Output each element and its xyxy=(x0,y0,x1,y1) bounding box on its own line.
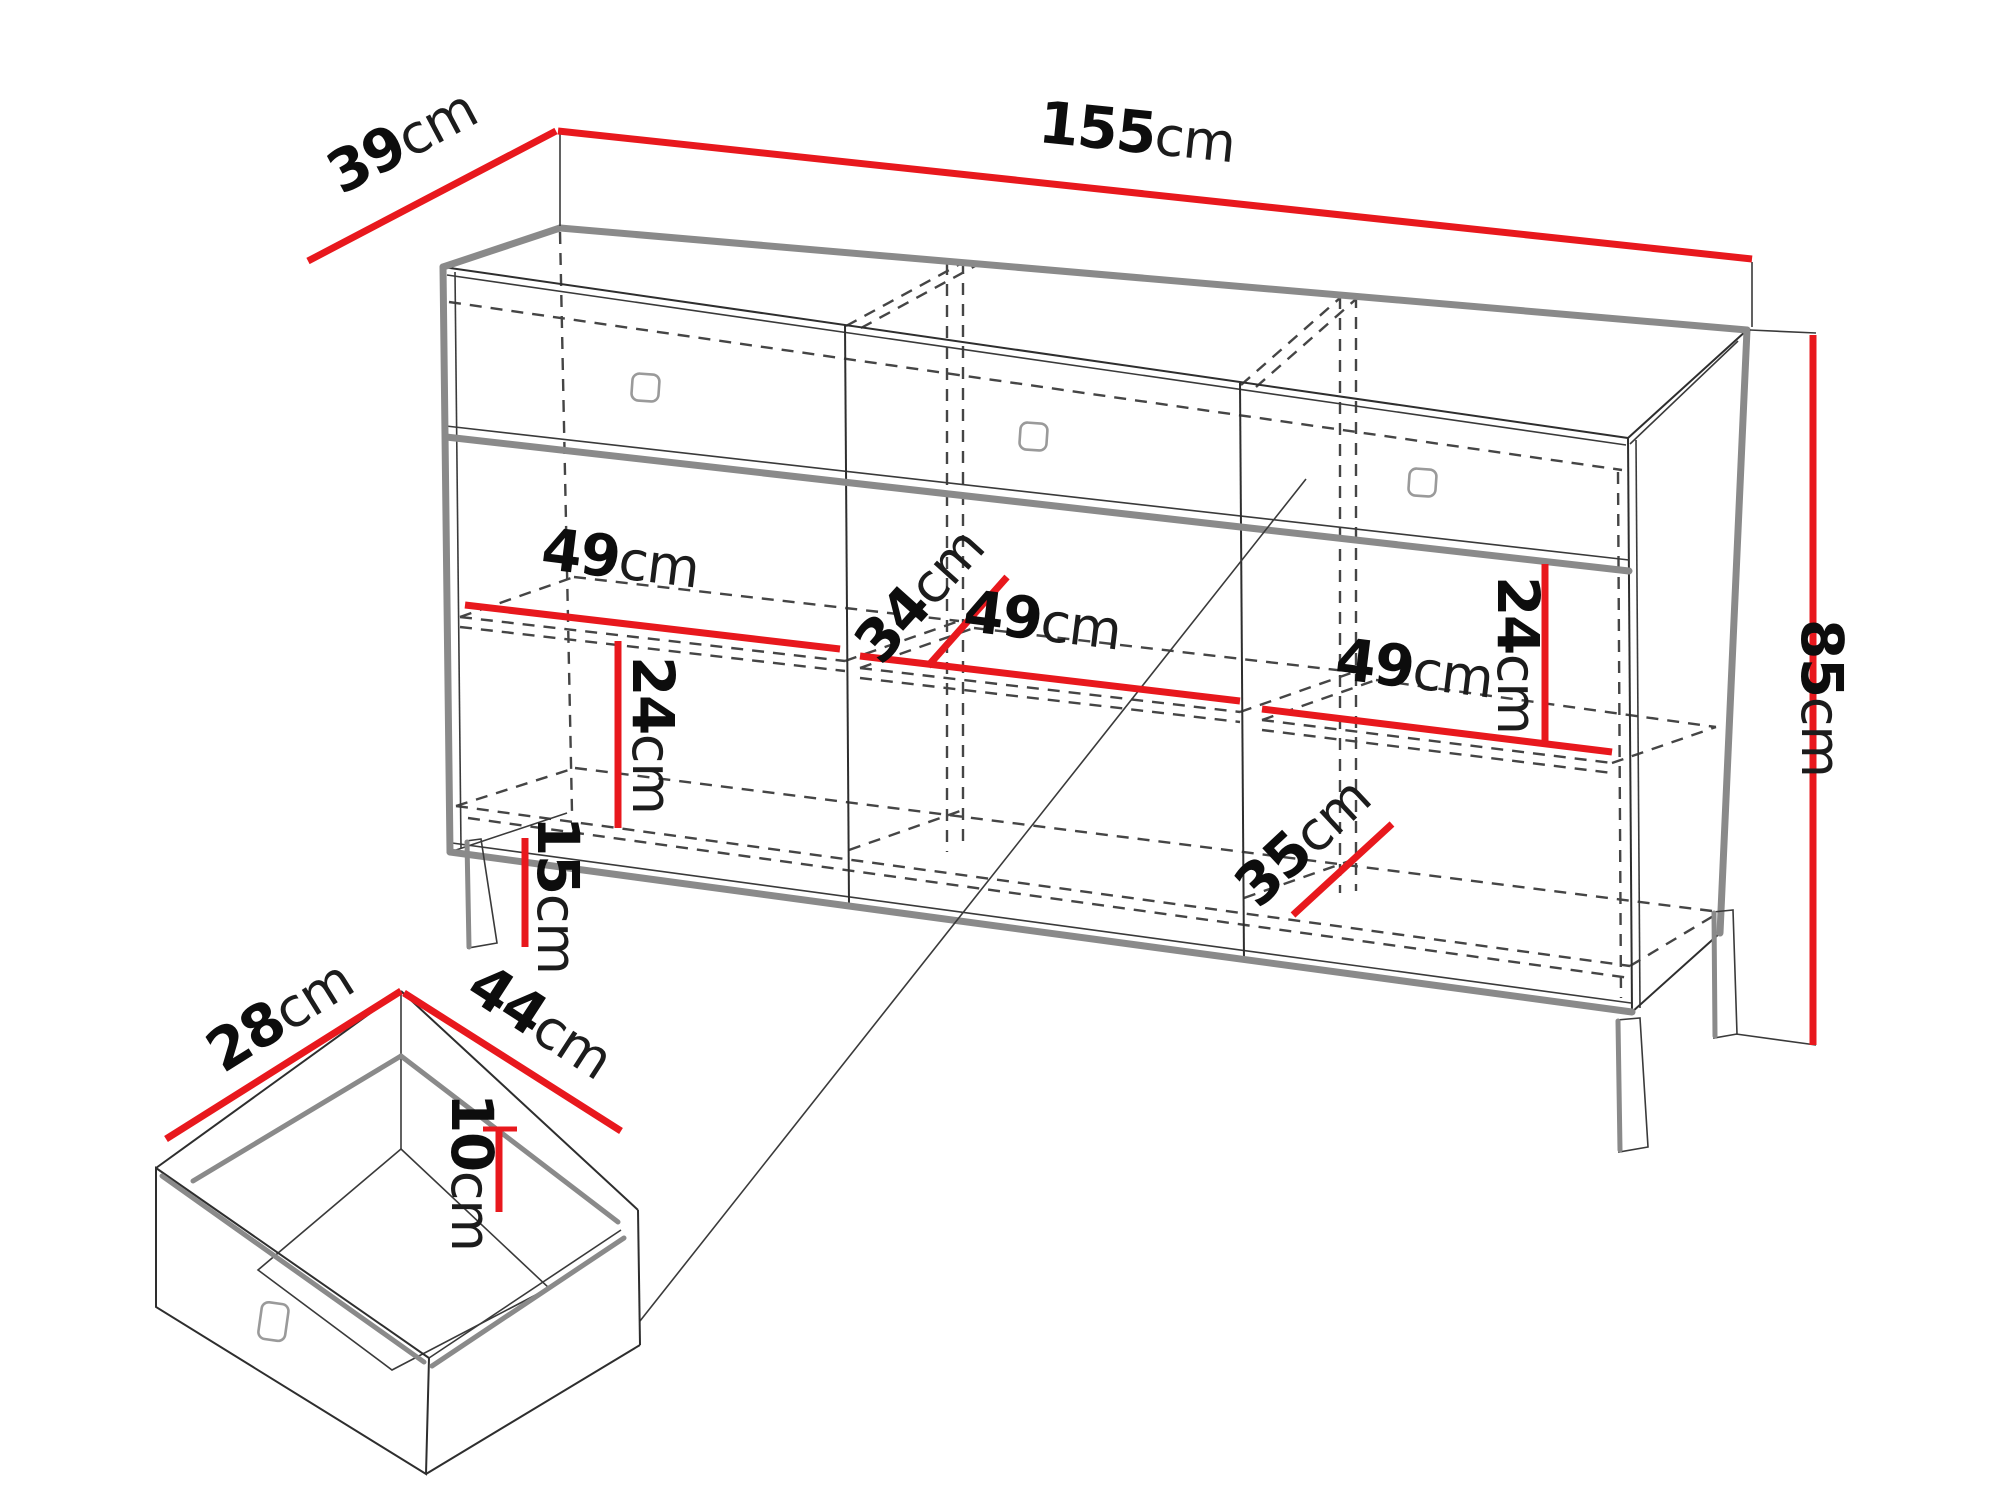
dimension-labels: 155cm 39cm 85cm 49cm 49cm 49cm 34cm 24cm… xyxy=(194,73,1856,1251)
detail-drawer-handle xyxy=(257,1301,289,1341)
drawer-1-handle xyxy=(631,373,660,402)
furniture-dimension-diagram: 155cm 39cm 85cm 49cm 49cm 49cm 34cm 24cm… xyxy=(0,0,2000,1500)
cabinet-drawer-handles xyxy=(631,373,1437,497)
label-comp1-width: 49cm xyxy=(538,515,703,602)
dimension-line-49-comp3 xyxy=(1262,709,1612,752)
front-right-leg xyxy=(1617,1018,1648,1152)
dimension-line-49-comp2 xyxy=(860,656,1240,701)
label-total-width: 155cm xyxy=(1036,88,1239,176)
label-leg-height: 15cm xyxy=(524,816,592,974)
label-drawer-inner-height: 10cm xyxy=(438,1093,506,1251)
cabinet-legs xyxy=(466,839,1737,1152)
diagram-canvas: 155cm 39cm 85cm 49cm 49cm 49cm 34cm 24cm… xyxy=(0,0,2000,1500)
back-right-leg xyxy=(1713,910,1737,1038)
label-total-depth: 39cm xyxy=(316,73,487,207)
label-bottom-shelf-depth: 35cm xyxy=(1221,763,1383,920)
drawer-3-handle xyxy=(1408,468,1437,497)
dimension-line-49-comp1 xyxy=(465,605,840,649)
label-comp3-shelf-height: 24cm xyxy=(1484,576,1552,734)
label-total-height: 85cm xyxy=(1788,619,1856,777)
label-comp1-shelf-height: 24cm xyxy=(619,656,687,814)
drawer-2-handle xyxy=(1019,422,1048,451)
label-comp2-width: 49cm xyxy=(960,577,1125,664)
dimension-lines xyxy=(166,131,1816,1212)
